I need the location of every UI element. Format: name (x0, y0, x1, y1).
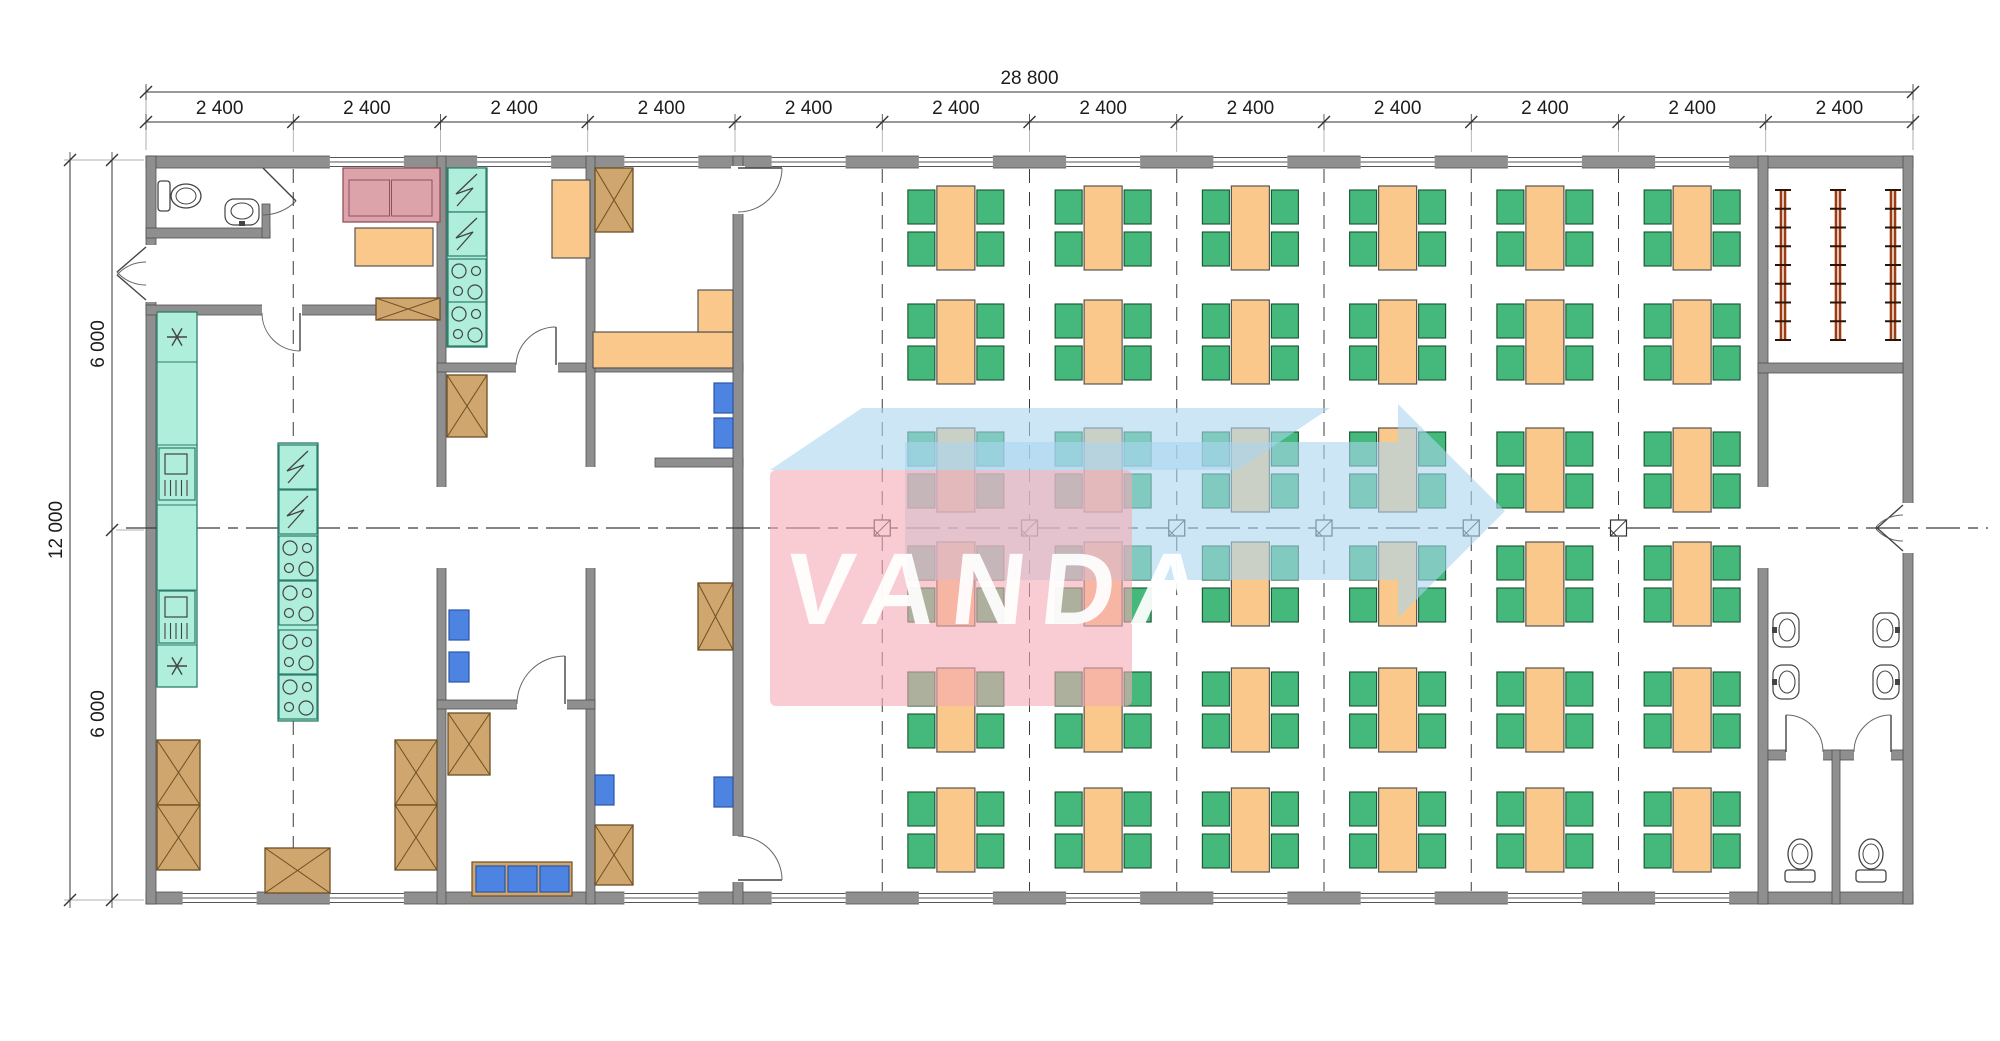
dining-table-group (1497, 668, 1593, 752)
dining-chair (1350, 232, 1377, 266)
toilet-icon (158, 181, 201, 211)
dining-table (1231, 668, 1269, 752)
dining-table (1526, 788, 1564, 872)
dining-chair (1497, 834, 1524, 868)
dining-chair (1271, 232, 1298, 266)
dimension-label-total-width: 28 800 (1000, 68, 1058, 89)
dining-chair (1566, 474, 1593, 508)
dining-chair (1202, 346, 1229, 380)
blue-chair (714, 383, 733, 413)
door-leaf (1876, 527, 1903, 551)
dining-chair (1713, 714, 1740, 748)
wall-opening (144, 245, 158, 302)
dining-chair (1350, 304, 1377, 338)
dining-table (1673, 788, 1711, 872)
dining-chair (908, 346, 935, 380)
watermark-box-top (770, 408, 1330, 470)
dining-table (1379, 788, 1417, 872)
dining-chair (1271, 672, 1298, 706)
dining-chair (977, 792, 1004, 826)
coat-rack-icon (1885, 190, 1901, 340)
dining-chair (1713, 588, 1740, 622)
dining-chair (977, 834, 1004, 868)
dining-chair (1644, 588, 1671, 622)
dining-table (1379, 668, 1417, 752)
dining-chair (1350, 588, 1377, 622)
column-marker-icon (1611, 520, 1627, 536)
fridge-lightning-icon (448, 212, 486, 256)
dining-table-group (1497, 788, 1593, 872)
dining-chair (1713, 474, 1740, 508)
dining-chair (908, 714, 935, 748)
dining-table-group (1644, 542, 1740, 626)
dining-chair (1644, 474, 1671, 508)
wall (262, 204, 270, 238)
dining-chair (908, 190, 935, 224)
dining-table (1379, 186, 1417, 270)
toilet-icon (1785, 839, 1815, 882)
dining-chair (1055, 346, 1082, 380)
dining-chair (1497, 714, 1524, 748)
dimension-label-width-segment: 2 400 (1816, 98, 1864, 119)
dining-chair (908, 792, 935, 826)
dining-chair (1497, 588, 1524, 622)
dining-chair (1202, 792, 1229, 826)
door-arc (516, 327, 556, 365)
dining-chair (1124, 346, 1151, 380)
dining-chair (1202, 232, 1229, 266)
dining-chair (977, 190, 1004, 224)
dining-chair (1350, 672, 1377, 706)
bench-seat (476, 866, 505, 892)
dining-table-group (1644, 186, 1740, 270)
dining-chair (1055, 232, 1082, 266)
dining-chair (1124, 232, 1151, 266)
door-arc (1854, 715, 1891, 752)
dining-chair (1713, 792, 1740, 826)
door-arc (1786, 715, 1823, 752)
dining-table-group (1202, 300, 1298, 384)
dining-chair (1566, 232, 1593, 266)
dining-chair (1055, 190, 1082, 224)
fridge-lightning-icon (279, 490, 317, 534)
dining-table (1231, 186, 1269, 270)
dining-chair (1644, 432, 1671, 466)
dining-chair (1497, 792, 1524, 826)
dimension-label-width-segment: 2 400 (490, 98, 538, 119)
door-leaf (117, 275, 146, 300)
dining-chair (1566, 432, 1593, 466)
blue-chair (714, 777, 733, 807)
prep-desk (552, 180, 590, 258)
dining-chair (1566, 714, 1593, 748)
dining-chair (1497, 346, 1524, 380)
dining-chair (1124, 714, 1151, 748)
dining-chair (977, 714, 1004, 748)
washbasin-icon (225, 199, 259, 226)
dining-table-group (1497, 186, 1593, 270)
dining-chair (1055, 714, 1082, 748)
dining-table (937, 300, 975, 384)
dining-table-group (1644, 300, 1740, 384)
dimension-label-width-segment: 2 400 (1227, 98, 1275, 119)
wall (146, 892, 1913, 904)
dining-chair (1419, 190, 1446, 224)
dining-chair (1124, 304, 1151, 338)
dining-chair (1644, 546, 1671, 580)
dining-chair (1419, 232, 1446, 266)
stove-4burner-icon (448, 302, 486, 346)
blue-chair (595, 775, 614, 805)
dining-chair (1202, 190, 1229, 224)
dishwasher-icon (159, 591, 195, 643)
floor-plan-canvas: 28 8002 4002 4002 4002 4002 4002 4002 40… (0, 0, 2000, 1041)
dining-chair (977, 304, 1004, 338)
dining-chair (1497, 672, 1524, 706)
dining-chair (1419, 792, 1446, 826)
coat-rack-icon (1775, 190, 1791, 340)
dining-chair (1350, 346, 1377, 380)
dining-table-group (1497, 542, 1593, 626)
dining-chair (1350, 834, 1377, 868)
dining-chair (1644, 672, 1671, 706)
dining-table (1673, 300, 1711, 384)
dining-chair (977, 346, 1004, 380)
wall-opening (517, 698, 567, 711)
dining-table (937, 186, 975, 270)
wall-opening (731, 166, 745, 214)
dining-chair (1713, 432, 1740, 466)
dining-table-group (1350, 788, 1446, 872)
dining-table (1231, 300, 1269, 384)
dining-chair (1419, 346, 1446, 380)
dimension-label-width-segment: 2 400 (343, 98, 391, 119)
wall (1758, 363, 1903, 373)
dining-chair (1644, 304, 1671, 338)
fridge-lightning-icon (448, 168, 486, 212)
dining-chair (1055, 304, 1082, 338)
stove-4burner-icon (279, 536, 317, 580)
sofa-cushion (349, 180, 390, 216)
dining-table-group (1497, 428, 1593, 512)
dining-chair (1271, 792, 1298, 826)
dining-chair (1055, 834, 1082, 868)
dining-chair (1566, 792, 1593, 826)
washbasin-icon (1873, 665, 1900, 699)
dining-chair (1497, 432, 1524, 466)
dimension-label-width-segment: 2 400 (638, 98, 686, 119)
dining-table-group (1055, 300, 1151, 384)
washbasin-icon (1772, 613, 1799, 647)
dining-table (1379, 300, 1417, 384)
dining-chair (1124, 190, 1151, 224)
dining-table-group (1644, 428, 1740, 512)
washbasin-icon (1873, 613, 1900, 647)
dining-table (1673, 428, 1711, 512)
bench-seat (540, 866, 569, 892)
sofa-cushion (392, 180, 433, 216)
wall-opening (1854, 748, 1891, 762)
fridge-lightning-icon (279, 445, 317, 489)
wall (146, 228, 270, 238)
dining-chair (1713, 190, 1740, 224)
dining-chair (1713, 346, 1740, 380)
wall (733, 156, 743, 904)
dining-chair (1566, 588, 1593, 622)
dining-chair (1419, 834, 1446, 868)
coat-rack-icon (1830, 190, 1846, 340)
dimension-label-height-segment: 6 000 (88, 320, 109, 368)
dining-chair (1713, 546, 1740, 580)
dining-table-group (1202, 788, 1298, 872)
washbasin-icon (1772, 665, 1799, 699)
dining-table-group (1644, 668, 1740, 752)
dining-table-group (1350, 668, 1446, 752)
dining-table (1526, 186, 1564, 270)
stove-4burner-icon (448, 259, 486, 303)
serving-counter (698, 290, 733, 332)
dining-chair (1419, 304, 1446, 338)
dining-chair (1566, 546, 1593, 580)
dining-table (1673, 186, 1711, 270)
dimension-label-width-segment: 2 400 (1668, 98, 1716, 119)
door-arc (517, 656, 565, 704)
stove-4burner-icon (279, 630, 317, 674)
dining-chair (977, 232, 1004, 266)
dining-chair (1713, 672, 1740, 706)
dining-table-group (1202, 186, 1298, 270)
dining-chair (1202, 714, 1229, 748)
wall-opening (731, 836, 745, 882)
dimension-label-width-segment: 2 400 (1079, 98, 1127, 119)
dining-chair (1271, 346, 1298, 380)
dining-chair (1566, 672, 1593, 706)
watermark-text: VANDA (780, 531, 1227, 646)
dining-chair (1713, 834, 1740, 868)
stove-4burner-icon (279, 675, 317, 719)
dining-chair (1350, 792, 1377, 826)
dishwasher-icon (159, 448, 195, 500)
blue-chair (714, 418, 733, 448)
wall-opening (262, 303, 302, 317)
dining-table (937, 788, 975, 872)
serving-counter (593, 332, 733, 368)
dining-chair (1497, 474, 1524, 508)
door-leaf (117, 247, 146, 272)
dimension-label-width-segment: 2 400 (1374, 98, 1422, 119)
dining-table (1084, 788, 1122, 872)
dining-table (1231, 788, 1269, 872)
dining-table (1526, 300, 1564, 384)
dining-chair (1566, 190, 1593, 224)
dining-table-group (908, 300, 1004, 384)
dining-chair (1713, 232, 1740, 266)
dining-chair (1497, 304, 1524, 338)
dining-table-group (908, 186, 1004, 270)
dining-chair (1350, 714, 1377, 748)
door-arc (262, 313, 300, 351)
dimension-label-width-segment: 2 400 (196, 98, 244, 119)
dining-table (1084, 186, 1122, 270)
dining-chair (1497, 232, 1524, 266)
dining-chair (1202, 834, 1229, 868)
stove-4burner-icon (279, 581, 317, 625)
toilet-icon (1856, 839, 1886, 882)
dimension-label-width-segment: 2 400 (785, 98, 833, 119)
dining-chair (1566, 304, 1593, 338)
dimension-label-width-segment: 2 400 (1521, 98, 1569, 119)
dining-table (1673, 668, 1711, 752)
wall-opening (516, 361, 558, 374)
dining-table (1084, 300, 1122, 384)
dining-chair (1271, 304, 1298, 338)
dining-table-group (908, 788, 1004, 872)
bench-seat (508, 866, 537, 892)
wall (1832, 750, 1840, 904)
dining-chair (1644, 232, 1671, 266)
dining-table (1526, 428, 1564, 512)
coffee-table (355, 228, 433, 266)
dining-table-group (1350, 186, 1446, 270)
dining-table-group (1055, 186, 1151, 270)
dining-table (1673, 542, 1711, 626)
wall-opening (584, 467, 597, 568)
dining-table (1526, 542, 1564, 626)
dining-chair (1644, 346, 1671, 380)
dining-chair (1644, 792, 1671, 826)
dining-chair (1566, 346, 1593, 380)
wall (437, 700, 595, 709)
dining-chair (1271, 588, 1298, 622)
dining-chair (1271, 714, 1298, 748)
wall (655, 458, 743, 467)
dining-chair (1419, 672, 1446, 706)
dimension-label-total-height: 12 000 (46, 501, 67, 559)
dining-chair (1497, 546, 1524, 580)
dining-chair (1271, 190, 1298, 224)
dining-chair (1124, 792, 1151, 826)
wall (146, 156, 1913, 168)
floor-plan-drawing: 28 8002 4002 4002 4002 4002 4002 4002 40… (0, 0, 2000, 1041)
dining-chair (908, 834, 935, 868)
dining-chair (908, 304, 935, 338)
dining-chair (1350, 190, 1377, 224)
dining-table-group (1644, 788, 1740, 872)
blue-chair (449, 610, 469, 640)
dining-chair (1644, 834, 1671, 868)
dining-table-group (1202, 668, 1298, 752)
dining-chair (1566, 834, 1593, 868)
dining-chair (1644, 714, 1671, 748)
dining-chair (1713, 304, 1740, 338)
dimension-label-width-segment: 2 400 (932, 98, 980, 119)
dining-table-group (1055, 788, 1151, 872)
dining-table (1526, 668, 1564, 752)
blue-chair (449, 652, 469, 682)
dining-table-group (1497, 300, 1593, 384)
dining-chair (1271, 834, 1298, 868)
dimension-label-height-segment: 6 000 (88, 690, 109, 738)
dining-table-group (1350, 300, 1446, 384)
dining-chair (1644, 190, 1671, 224)
dining-chair (1202, 672, 1229, 706)
dining-chair (1124, 834, 1151, 868)
watermark: VANDA (780, 531, 1227, 646)
dining-chair (1055, 792, 1082, 826)
dining-chair (908, 232, 935, 266)
wall-opening (1786, 748, 1823, 762)
dining-chair (1419, 714, 1446, 748)
dining-chair (1497, 190, 1524, 224)
dining-chair (1202, 304, 1229, 338)
door-leaf (263, 168, 296, 201)
